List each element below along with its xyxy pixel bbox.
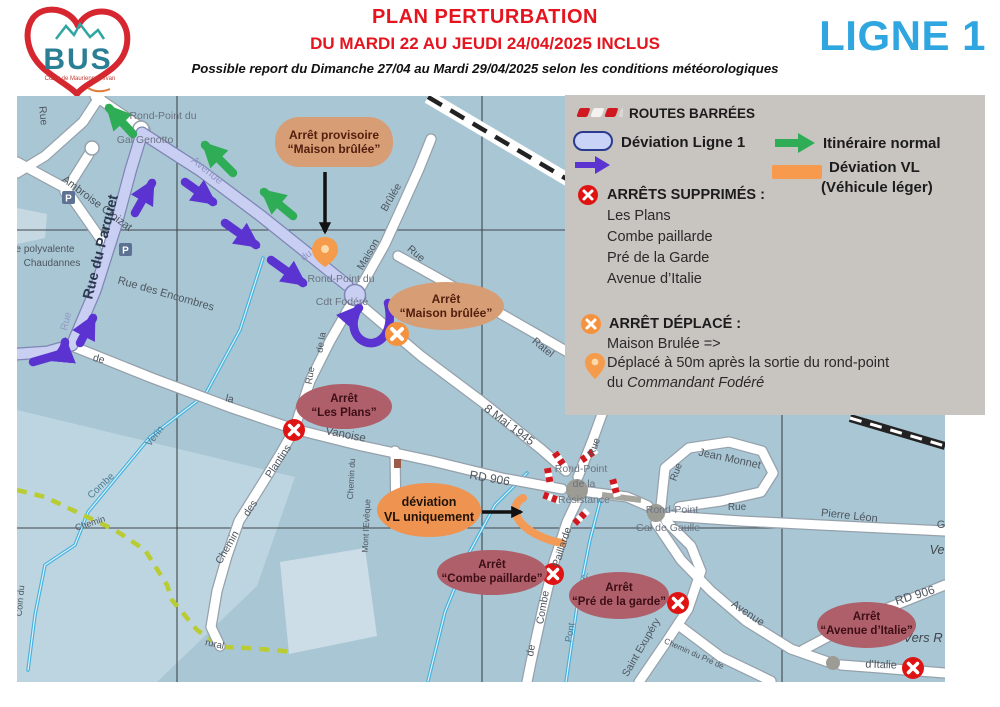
line-badge: LIGNE 1 [819,12,986,60]
itineraire-normal-icon [775,131,817,155]
callout-line: Arrêt [388,292,504,306]
callout-line: VL uniquement [377,510,481,525]
legend-deviation-vl-label: Déviation VL [829,159,920,176]
logo-swoosh [88,88,110,91]
legend-deplace-line2: du Commandant Fodéré [607,375,764,391]
legend-deplace-line2-italic: Commandant Fodéré [627,375,764,391]
building-block [280,548,377,654]
callout-arret-avenue-italie: Arrêt “Avenue d’Italie” [817,602,916,648]
callout-line: “Combe paillarde” [437,573,547,587]
building-icon [394,459,401,468]
removed-stop-icon [577,184,599,206]
legend-itineraire-normal-label: Itinéraire normal [823,135,941,152]
callout-arret-pre-de-la-garde: Arrêt “Pré de la garde” [569,572,669,619]
callout-line: “Maison brûlée” [388,306,504,320]
moved-stop-marker [385,322,409,346]
street-label: de la [573,478,596,490]
moved-stop-icon [580,313,602,335]
street-label: e polyvalente [17,244,75,255]
callout-arret-les-plans: Arrêt “Les Plans” [296,384,392,429]
parking-icon: P [119,243,132,257]
street-label: Gal de Gaulle [636,522,700,534]
legend-deplace-line2-prefix: du [607,375,627,391]
legend: ROUTES BARRÉES Déviation Ligne 1 Itinéra… [565,95,985,415]
street-label: Résistance [558,494,610,506]
callout-arret-combe-paillarde: Arrêt “Combe paillarde” [437,550,547,595]
street-label: Rond-Point [646,504,699,516]
callout-arret-maison-brulee: Arrêt “Maison brûlée” [388,282,504,330]
page-note: Possible report du Dimanche 27/04 au Mar… [150,61,820,76]
plan-perturbation-page: BUS Cœur de Maurienne Arvan PLAN PERTURB… [0,0,1000,707]
callout-line: déviation [377,495,481,510]
street-label: Ve [930,543,945,557]
callout-line: “Les Plans” [296,407,392,421]
legend-arrets-supprimes-title: ARRÊTS SUPPRIMÉS : [607,187,765,203]
removed-stop-les-plans [283,419,305,441]
header-titles: PLAN PERTURBATION DU MARDI 22 AU JEUDI 2… [150,6,820,76]
legend-arret-deplace-from: Maison Brulée => [607,336,721,352]
page-title: PLAN PERTURBATION [150,6,820,29]
svg-text:P: P [65,194,72,205]
svg-text:P: P [122,246,129,257]
callout-line: Arrêt [296,393,392,407]
bus-logo: BUS Cœur de Maurienne Arvan [16,2,140,96]
legend-deplace-line1: Déplacé à 50m après la sortie du rond-po… [607,355,889,371]
street-label: Rue [36,106,50,126]
street-label: Gal Genotto [117,134,174,146]
street-label: G [937,519,945,531]
legend-deviation-ligne1-label: Déviation Ligne 1 [621,134,745,151]
callout-line: Arrêt [817,611,916,625]
street-label: Rond-Point du [307,273,374,285]
street-label: de [524,644,538,658]
removed-stop-avenue-italie [902,657,924,679]
legend-removed-stop-item: Pré de la Garde [607,250,709,266]
callout-line: “Pré de la garde” [569,596,669,610]
logo-subtext: Cœur de Maurienne Arvan [45,76,116,82]
callout-line: “Avenue d’Italie” [817,625,916,639]
mountains-icon [56,24,104,39]
deviation-vl-icon [772,165,822,179]
street-label: Cdt Fodéré [316,296,369,308]
callout-line: Arrêt [569,582,669,596]
street-label: Rue [728,502,747,513]
legend-removed-stop-item: Combe paillarde [607,229,713,245]
page-subtitle: DU MARDI 22 AU JEUDI 24/04/2025 INCLUS [150,34,820,54]
legend-removed-stop-item: Avenue d’Italie [607,271,702,287]
callout-deviation-vl-uniquement: déviation VL uniquement [377,483,481,537]
legend-routes-barrees-label: ROUTES BARRÉES [629,106,755,121]
street-label: Rond-Point du [129,110,196,122]
legend-arret-deplace-title: ARRÊT DÉPLACÉ : [609,316,741,332]
deviation-ligne1-icon [573,131,613,151]
roundabout-italie [826,656,840,670]
routes-barrees-icon [573,104,623,122]
legend-removed-stop-item: Les Plans [607,208,671,224]
callout-arret-provisoire-maison-brulee: Arrêt provisoire “Maison brûlée” [275,117,393,167]
callout-line: Arrêt [437,559,547,573]
cul-de-sac [85,141,99,155]
street-label: Rond-Point [555,463,608,475]
street-label: d'Italie [865,658,897,671]
callout-line: Arrêt provisoire [275,128,393,142]
removed-stop-pre-garde [667,592,689,614]
street-label: Chaudannes [24,258,81,269]
bus-logo-graphic: BUS Cœur de Maurienne Arvan [16,2,140,96]
moved-stop-pin-icon [583,351,607,383]
callout-line: “Maison brûlée” [275,142,393,156]
deviation-arrow-icon [575,155,613,175]
logo-text: BUS [43,43,112,76]
legend-deviation-vl-sub-label: (Véhicule léger) [821,179,933,196]
